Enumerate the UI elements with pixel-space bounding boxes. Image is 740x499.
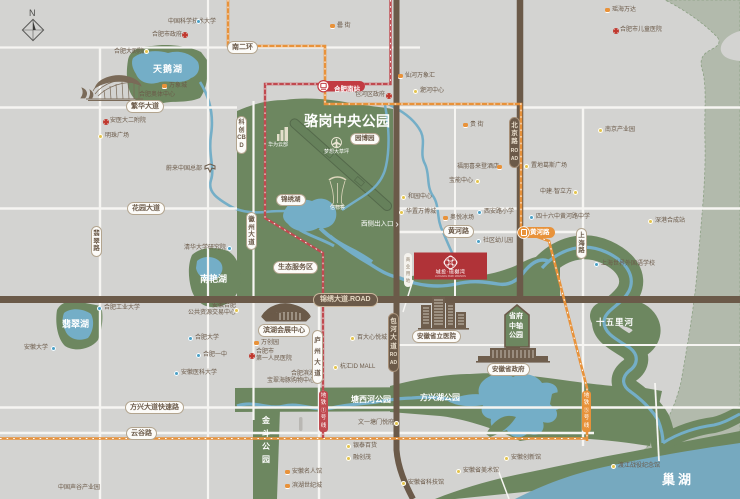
svg-text:LUOGANG PARK MANSION: LUOGANG PARK MANSION [435,275,466,278]
svg-text:N: N [29,8,36,18]
